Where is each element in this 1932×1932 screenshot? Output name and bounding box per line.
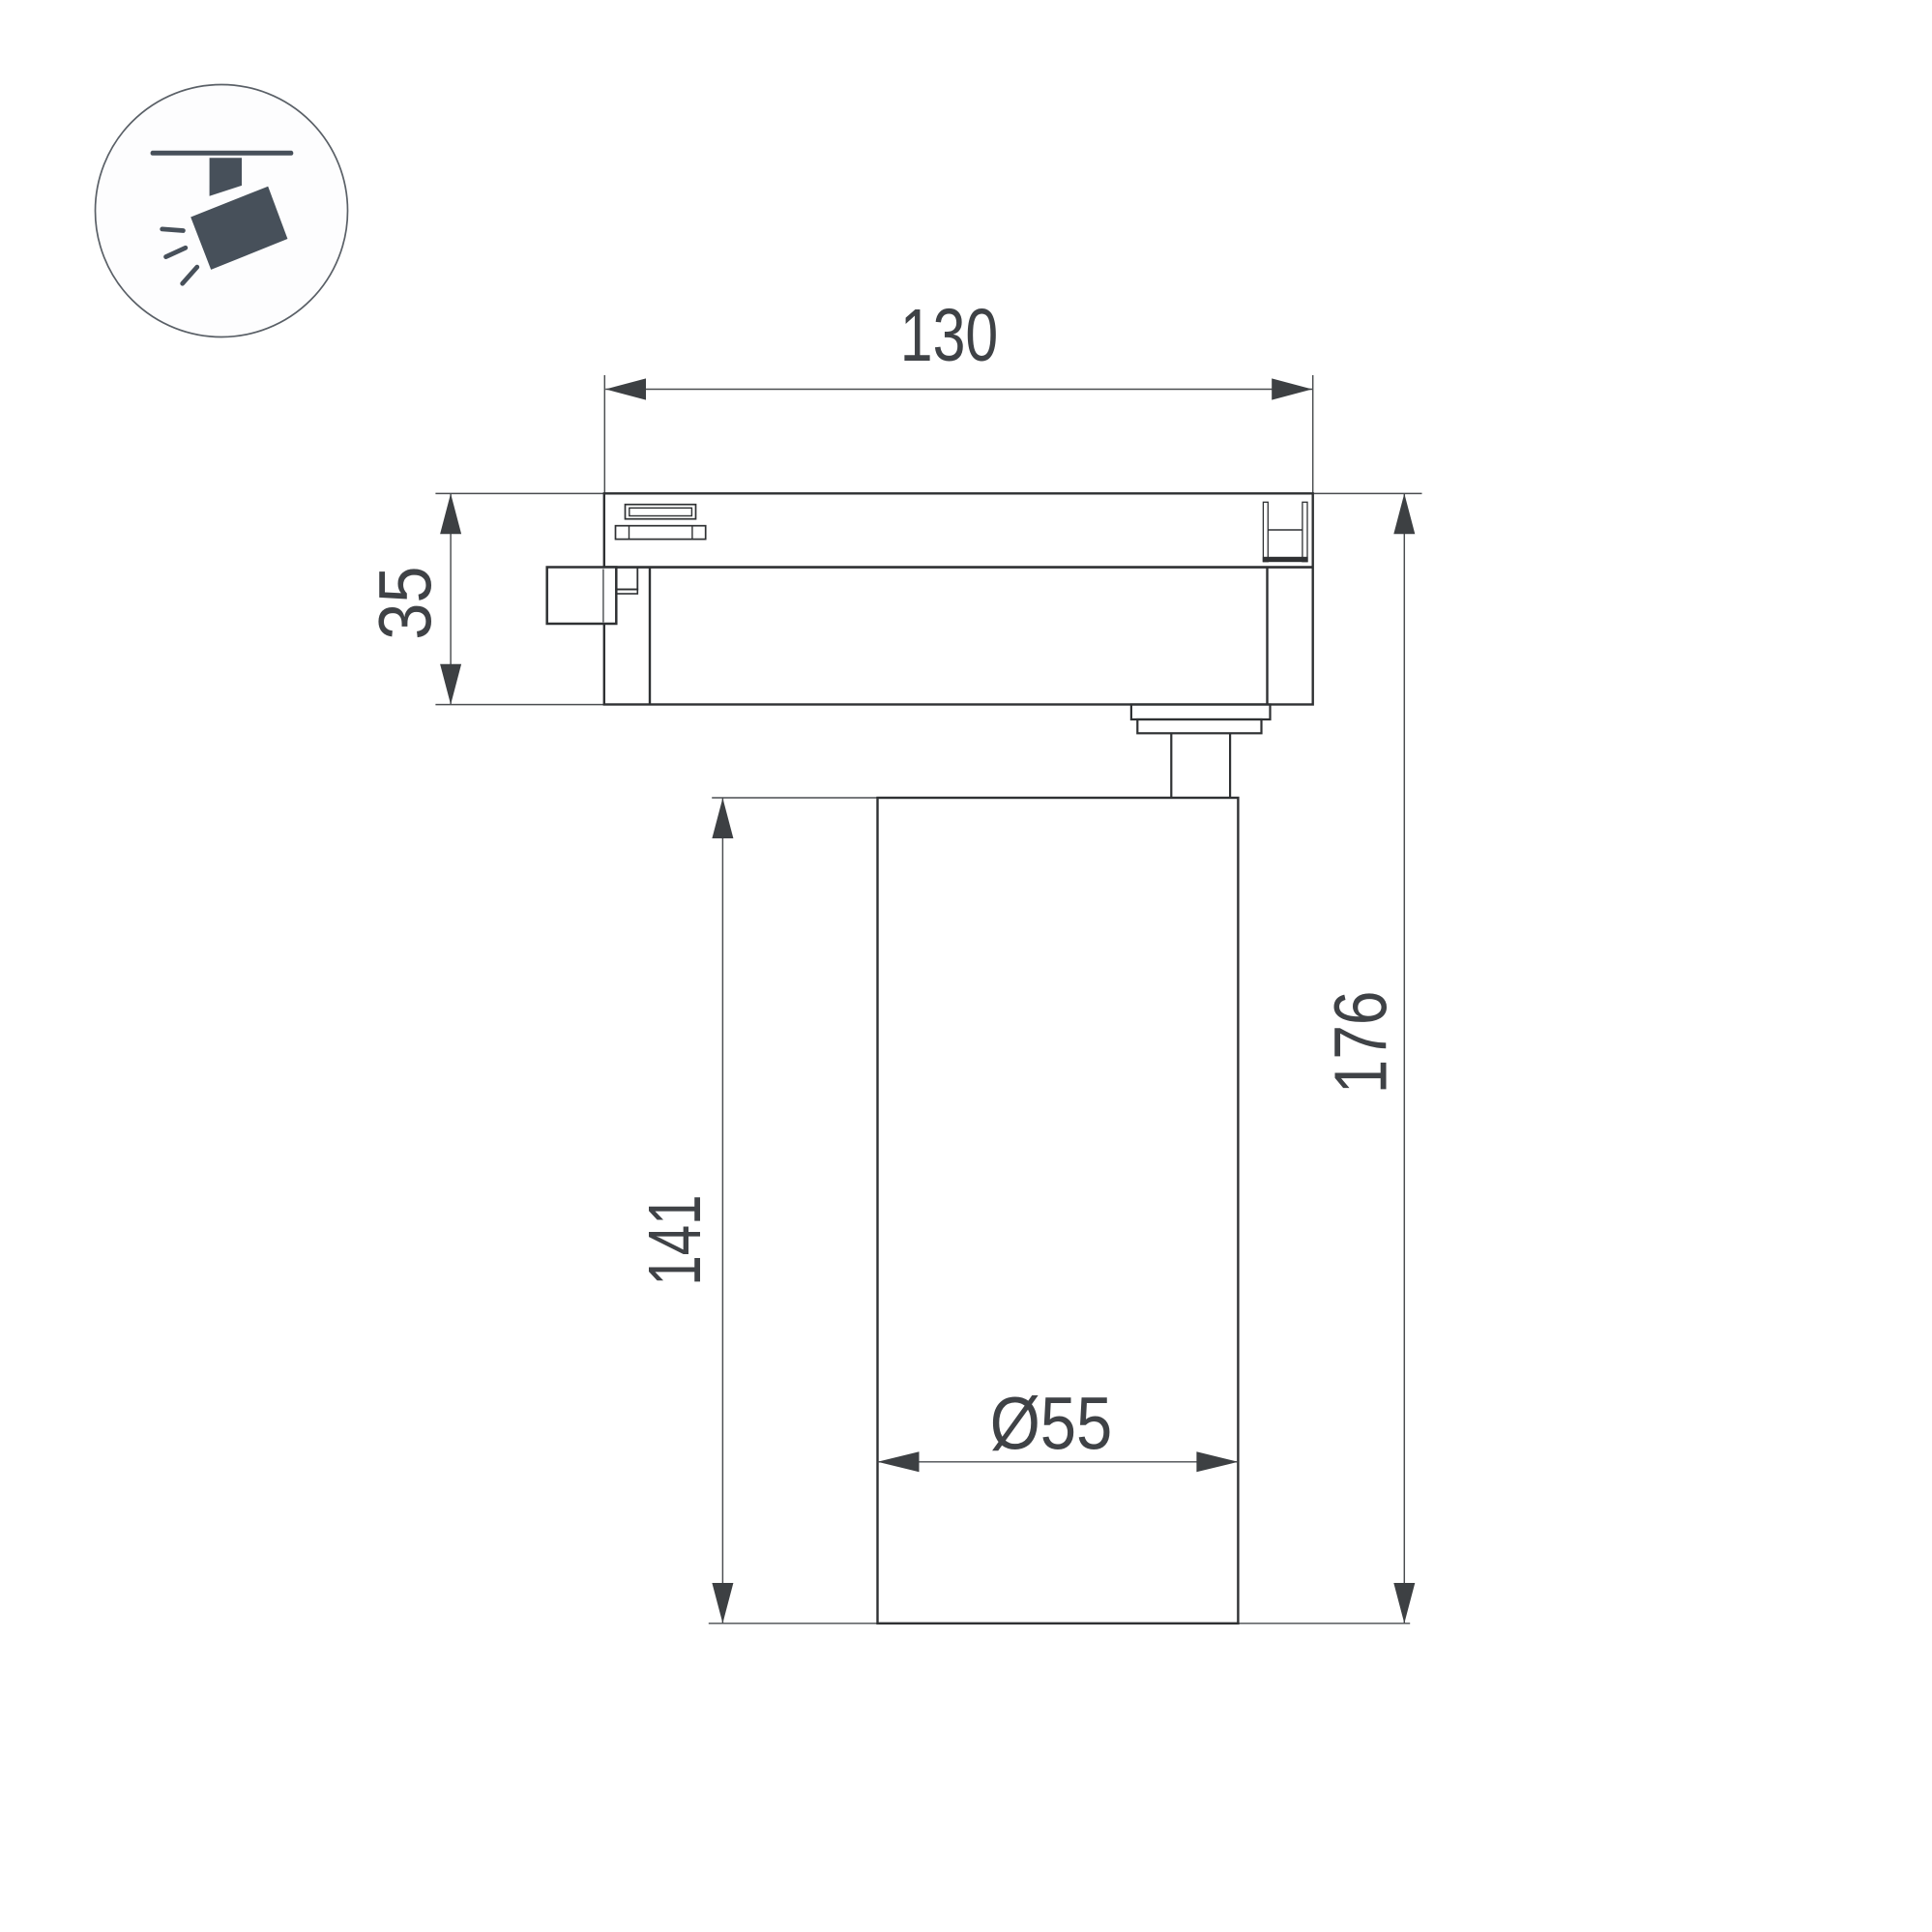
svg-text:176: 176 bbox=[1319, 991, 1402, 1095]
svg-text:141: 141 bbox=[634, 1195, 717, 1286]
svg-text:Ø55: Ø55 bbox=[990, 1383, 1113, 1465]
svg-text:35: 35 bbox=[365, 566, 448, 639]
svg-text:130: 130 bbox=[900, 293, 998, 377]
